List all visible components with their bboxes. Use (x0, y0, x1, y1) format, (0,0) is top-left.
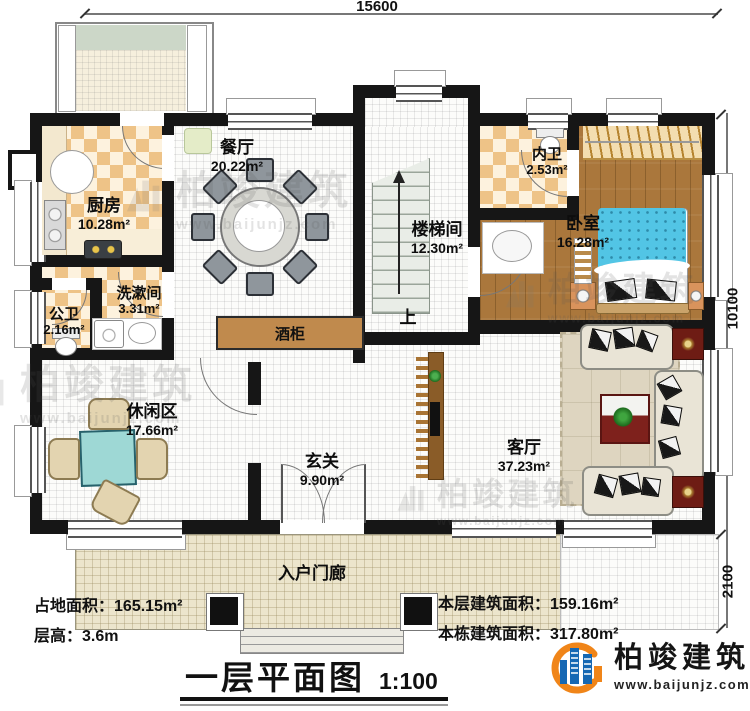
wardrobe (583, 126, 702, 160)
leisure-left-window (30, 427, 46, 493)
room-label-bedroom: 卧室 16.28m² (557, 214, 609, 250)
tv-screen (430, 402, 440, 436)
side-table-red (672, 476, 704, 508)
room-name: 卧室 (557, 214, 609, 234)
dimension-height: 10100 (725, 282, 742, 336)
room-area: 2.53m² (526, 163, 567, 178)
sofa-pillow (588, 328, 612, 352)
room-name: 餐厅 (211, 138, 263, 158)
porch-column-core (404, 597, 432, 625)
room-area: 2.16m² (43, 323, 84, 338)
washing-machine (94, 320, 124, 348)
partition-plant (429, 370, 441, 382)
bedroom-door-opening (468, 247, 480, 297)
dining-table-top (233, 200, 285, 252)
dimension-tick (716, 109, 727, 120)
building-area-label: 本栋建筑面积： (438, 626, 550, 643)
dimension-width: 15600 (347, 0, 407, 15)
leisure-chair (48, 438, 80, 480)
nightstand-left (570, 282, 596, 310)
kitchen-sink (44, 200, 66, 250)
room-area: 17.66m² (126, 422, 178, 438)
leisure-chair (136, 438, 168, 480)
land-area-value: 165.15m² (114, 598, 183, 615)
publicbath-toilet-bowl (55, 337, 77, 356)
terrace-planter (76, 25, 186, 52)
terrace-rail-left (58, 25, 76, 112)
room-area: 16.28m² (557, 234, 609, 250)
drawing-title-text: 一层平面图 (185, 651, 365, 699)
floor-height-label: 层高： (34, 628, 82, 645)
room-label-public-bath: 公卫 2.16m² (43, 306, 84, 338)
vanity-sink (492, 230, 532, 262)
drawing-title: 一层平面图 1:100 (185, 651, 438, 699)
brand-logo-block: 柏竣建筑 www.baijunjz.com (548, 640, 750, 696)
this-floor-area-label: 本层建筑面积： (438, 596, 550, 613)
laundry-basin (128, 322, 156, 344)
dining-corner-plant (184, 128, 212, 154)
laundry-door-opening (162, 272, 174, 318)
room-name: 洗漱间 (116, 285, 161, 302)
dining-chair (305, 213, 329, 241)
bedroom-right-window (702, 175, 719, 297)
room-label-inner-bath: 内卫 2.53m² (526, 146, 567, 178)
brand-logo-icon (548, 640, 604, 696)
room-name: 休闲区 (126, 402, 178, 422)
living-right-window (702, 350, 719, 472)
up-text: 上 (400, 308, 417, 328)
room-area: 12.30m² (411, 240, 463, 256)
room-name: 内卫 (526, 146, 567, 163)
room-name: 楼梯间 (411, 220, 463, 240)
bed-pillow (605, 278, 637, 302)
stair-arrow-line (398, 182, 400, 294)
this-floor-area-line: 本层建筑面积：159.16m² (438, 590, 619, 620)
room-label-stair-hall: 楼梯间 12.30m² (411, 220, 463, 256)
brand-name: 柏竣建筑 (614, 644, 750, 673)
wall-passage-jamb-bottom (248, 463, 261, 520)
sofa-pillow (618, 472, 641, 495)
sofa-pillow (641, 477, 661, 497)
room-area: 9.90m² (300, 472, 344, 488)
room-name: 客厅 (498, 438, 550, 458)
side-table-red (672, 328, 704, 360)
room-label-foyer: 玄关 9.90m² (300, 452, 344, 488)
dimension-porch: 2100 (720, 562, 737, 602)
brand-text-block: 柏竣建筑 www.baijunjz.com (614, 644, 750, 692)
room-area: 3.31m² (116, 302, 161, 317)
room-name: 玄关 (300, 452, 344, 472)
living-bottom-window (452, 520, 556, 538)
watermark-logo-icon (0, 366, 12, 414)
floor-height-line: 层高：3.6m (34, 622, 183, 652)
porch-label: 入户门廊 (278, 564, 346, 584)
stats-left: 占地面积：165.15m² 层高：3.6m (34, 592, 183, 651)
room-label-dining: 餐厅 20.22m² (211, 138, 263, 174)
room-label-laundry: 洗漱间 3.31m² (116, 285, 161, 317)
room-label-kitchen: 厨房 10.28m² (78, 196, 130, 232)
wine-cabinet-label: 酒柜 (275, 323, 305, 344)
stair-arrow-head (393, 170, 405, 183)
innerbath-door-opening (567, 150, 579, 196)
wall-stair-south (365, 332, 480, 345)
bed-pillow (645, 278, 677, 301)
drawing-scale: 1:100 (379, 668, 438, 695)
stairwell-window (396, 85, 442, 102)
wall-top-right (480, 113, 715, 126)
this-floor-area-value: 159.16m² (550, 596, 619, 613)
coffee-table-plant (613, 407, 633, 427)
wine-cabinet: 酒柜 (216, 316, 364, 350)
living-bottom-window2 (564, 520, 652, 538)
porch-text: 入户门廊 (278, 564, 346, 584)
room-label-living: 客厅 37.23m² (498, 438, 550, 474)
room-name: 公卫 (43, 306, 84, 323)
tv-partition-slats (416, 352, 428, 478)
publicbath-door-opening (52, 278, 86, 290)
room-area: 10.28m² (78, 216, 130, 232)
kitchen-terrace-door-opening (120, 113, 164, 126)
kitchen-dining-opening (162, 135, 174, 181)
floor-plan-canvas: 15600 10100 2100 (0, 0, 750, 711)
floor-height-value: 3.6m (82, 628, 118, 645)
room-name: 厨房 (78, 196, 130, 216)
room-area: 20.22m² (211, 158, 263, 174)
dining-window (228, 113, 312, 130)
sofa-pillow (613, 327, 636, 350)
room-label-leisure: 休闲区 17.66m² (126, 402, 178, 438)
wall-stair-right (468, 98, 480, 345)
kitchen-stove (84, 240, 122, 259)
kitchen-round-table (50, 150, 94, 194)
nightstand-right (688, 282, 704, 310)
leisure-chair (88, 398, 130, 430)
dining-chair (246, 272, 274, 296)
room-area: 37.23m² (498, 458, 550, 474)
land-area-label: 占地面积： (34, 598, 114, 615)
sofa-pillow (660, 404, 682, 426)
title-underline-thick (180, 697, 448, 701)
land-area-line: 占地面积：165.15m² (34, 592, 183, 622)
stair-up-label: 上 (400, 308, 417, 328)
bed-headboard (596, 303, 690, 314)
brand-website: www.baijunjz.com (614, 677, 750, 692)
terrace-rail-right (187, 25, 207, 112)
porch-column-core (210, 597, 238, 625)
terrace-tiles (76, 50, 186, 111)
dining-chair (191, 213, 215, 241)
wardrobe-rail (585, 141, 699, 143)
title-underline-thin (180, 704, 448, 706)
